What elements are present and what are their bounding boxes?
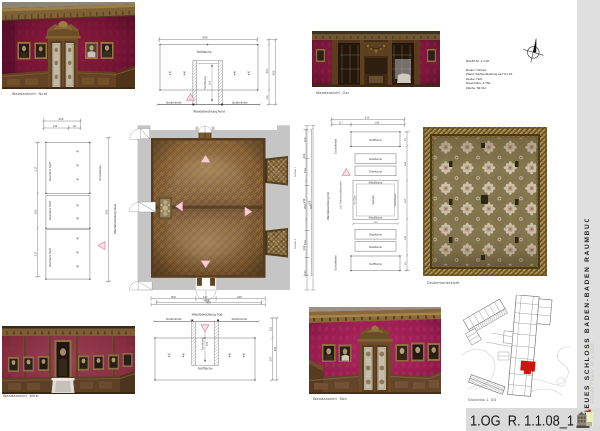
svg-text:415: 415 xyxy=(365,116,370,120)
svg-text:Wandabwicklung Süd: Wandabwicklung Süd xyxy=(192,313,223,317)
svg-text:606: 606 xyxy=(104,209,108,214)
svg-text:208: 208 xyxy=(302,245,306,250)
svg-text:Sockelleiste: Sockelleiste xyxy=(98,165,102,181)
svg-text:Fenster 2: Fenster 2 xyxy=(294,238,297,249)
svg-text:Bodenleiste: Bodenleiste xyxy=(166,317,182,321)
svg-text:Türöffnung: Türöffnung xyxy=(201,337,205,351)
svg-text:Glasfläche: Glasfläche xyxy=(369,245,383,249)
svg-text:Bodenleiste: Bodenleiste xyxy=(232,100,248,104)
svg-text:Wandabwicklung Ost: Wandabwicklung Ost xyxy=(326,192,330,220)
svg-text:453: 453 xyxy=(59,117,64,121)
svg-text:Glasfläche: Glasfläche xyxy=(369,233,383,237)
svg-text:HAUPTBAU M 1/100: HAUPTBAU M 1/100 xyxy=(590,343,596,403)
svg-text:VK Glas: VK Glas xyxy=(353,195,356,205)
svg-text:144: 144 xyxy=(404,161,407,166)
svg-text:Glasfläche: Glasfläche xyxy=(369,157,383,161)
svg-text:Rechteck Stoff: Rechteck Stoff xyxy=(48,248,52,267)
svg-text:Bodenleiste: Bodenleiste xyxy=(232,317,248,321)
svg-text:208: 208 xyxy=(302,153,306,158)
svg-text:Fenster 1: Fenster 1 xyxy=(294,166,297,177)
svg-text:206: 206 xyxy=(209,80,212,85)
svg-text:Sockelleiste: Sockelleiste xyxy=(334,255,338,271)
svg-text:217: 217 xyxy=(34,251,38,256)
svg-text:Metallkante: Metallkante xyxy=(394,193,397,206)
svg-text:150: 150 xyxy=(34,209,38,214)
svg-text:606: 606 xyxy=(204,298,209,302)
svg-text:1.OG R. 1.1.08_1: 1.OG R. 1.1.08_1 xyxy=(470,414,574,430)
svg-text:Metallkante: Metallkante xyxy=(369,217,383,220)
svg-text:Türöffnung: Türöffnung xyxy=(203,76,207,90)
svg-text:154: 154 xyxy=(404,198,407,203)
svg-text:111: 111 xyxy=(73,125,77,128)
svg-text:Rechteck Stoff: Rechteck Stoff xyxy=(48,162,52,181)
svg-text:298: 298 xyxy=(53,125,58,128)
svg-text:Stofffläche: Stofffläche xyxy=(197,50,212,54)
svg-text:144: 144 xyxy=(404,235,407,240)
svg-text:116: 116 xyxy=(266,95,269,100)
svg-text:217: 217 xyxy=(34,166,38,171)
svg-text:606: 606 xyxy=(202,36,207,40)
svg-text:Bodenleiste: Bodenleiste xyxy=(166,100,182,104)
svg-text:61: 61 xyxy=(404,138,407,141)
svg-text:117: 117 xyxy=(339,122,344,125)
svg-text:Stofffläche: Stofffläche xyxy=(198,367,213,371)
svg-text:Rechteck Stoff: Rechteck Stoff xyxy=(48,201,52,220)
svg-text:608: 608 xyxy=(308,200,312,205)
svg-text:158: 158 xyxy=(302,198,306,203)
svg-text:Stofffläche: Stofffläche xyxy=(369,138,383,142)
svg-text:116: 116 xyxy=(268,326,272,331)
svg-text:61: 61 xyxy=(404,262,407,265)
svg-text:210: 210 xyxy=(373,221,378,224)
svg-text:Wandabwicklung West: Wandabwicklung West xyxy=(113,204,117,234)
svg-text:(A) Trennwandelement: (A) Trennwandelement xyxy=(340,181,343,208)
svg-text:Metallkante: Metallkante xyxy=(369,181,383,184)
svg-text:Stofffläche: Stofffläche xyxy=(369,262,383,266)
svg-text:Spiegel: Spiegel xyxy=(371,195,375,205)
svg-text:367: 367 xyxy=(265,68,269,73)
svg-text:453: 453 xyxy=(273,346,277,351)
svg-text:367: 367 xyxy=(268,356,272,361)
svg-text:453: 453 xyxy=(272,70,276,75)
svg-text:Glasfläche: Glasfläche xyxy=(369,169,383,173)
svg-text:298: 298 xyxy=(375,122,380,125)
svg-text:Sockelleiste: Sockelleiste xyxy=(334,138,338,154)
svg-text:206: 206 xyxy=(206,341,209,346)
